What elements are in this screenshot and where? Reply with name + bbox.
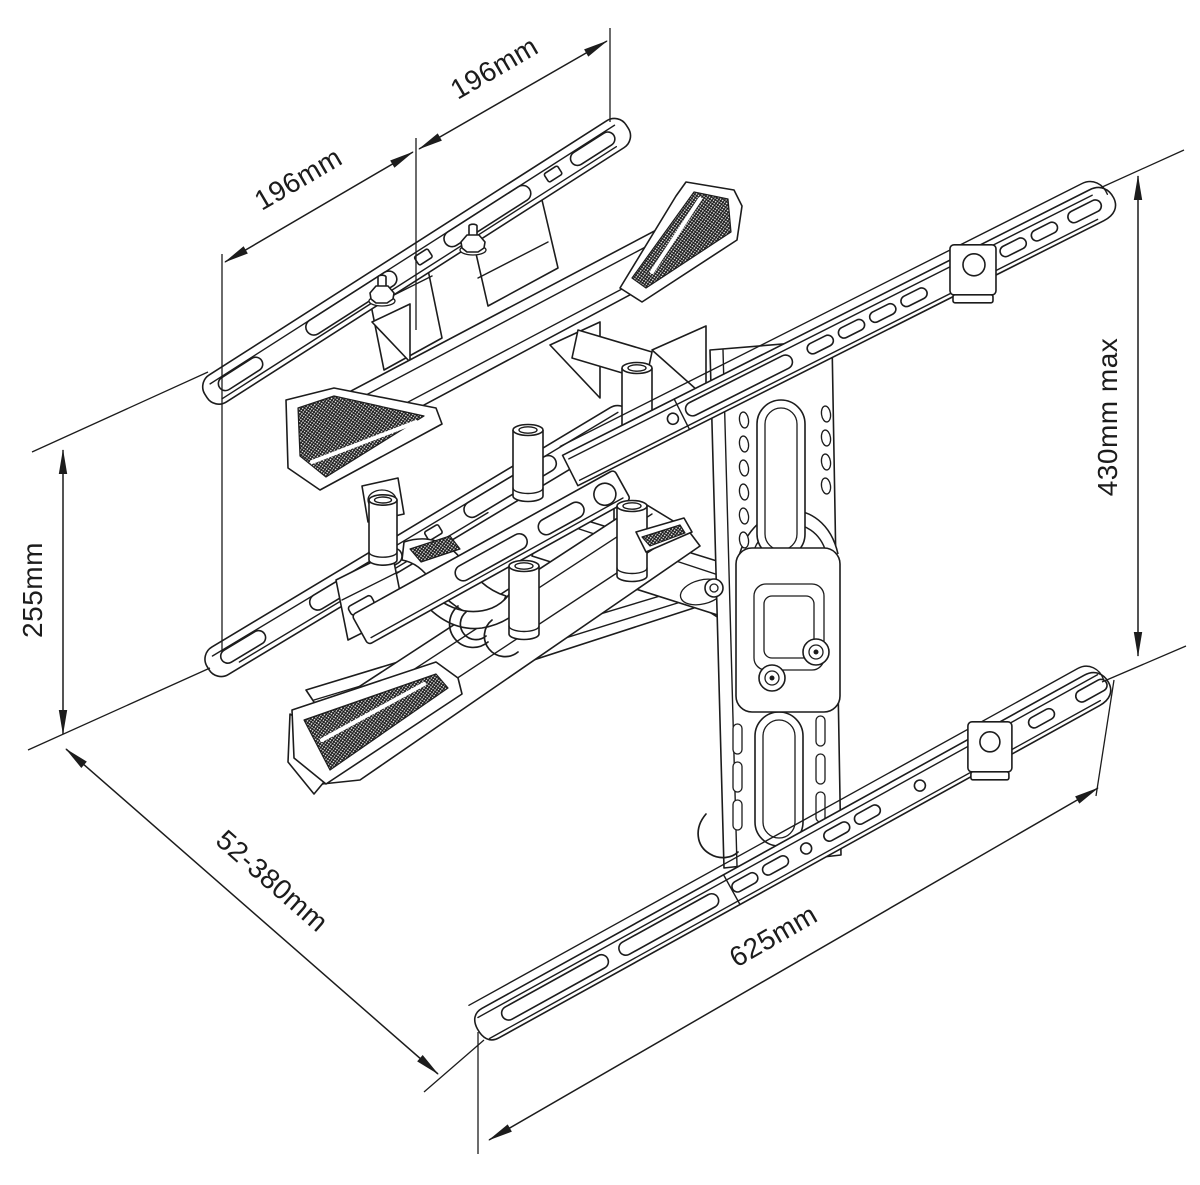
dim-label-52-380: 52-380mm — [210, 824, 334, 938]
dim-label-255: 255mm — [17, 542, 48, 638]
wall-rail-top — [556, 170, 1132, 508]
pivot-pin-upper-left — [513, 425, 543, 502]
dimension-196-right: 196mm — [419, 28, 610, 149]
tv-mount-dimension-diagram: 196mm 196mm 255mm 430mm max 52-380mm 625… — [0, 0, 1200, 1185]
wall-rail-bottom-clamp — [968, 722, 1012, 780]
tilt-knuckle — [736, 548, 840, 712]
wall-plate-column — [698, 340, 841, 868]
dimension-255: 255mm — [17, 372, 210, 750]
dim-label-430-max: 430mm max — [1092, 338, 1123, 497]
dim-label-196-right: 196mm — [445, 30, 543, 105]
pivot-pin-lower-left — [509, 561, 539, 640]
dimension-52-380: 52-380mm — [66, 749, 484, 1092]
dim-label-196-left: 196mm — [249, 141, 347, 216]
pivot-pin-left-front — [369, 495, 397, 565]
dim-label-625: 625mm — [724, 898, 823, 973]
wall-rail-top-clamp — [950, 245, 996, 303]
dimension-430-max: 430mm max — [1092, 150, 1186, 682]
